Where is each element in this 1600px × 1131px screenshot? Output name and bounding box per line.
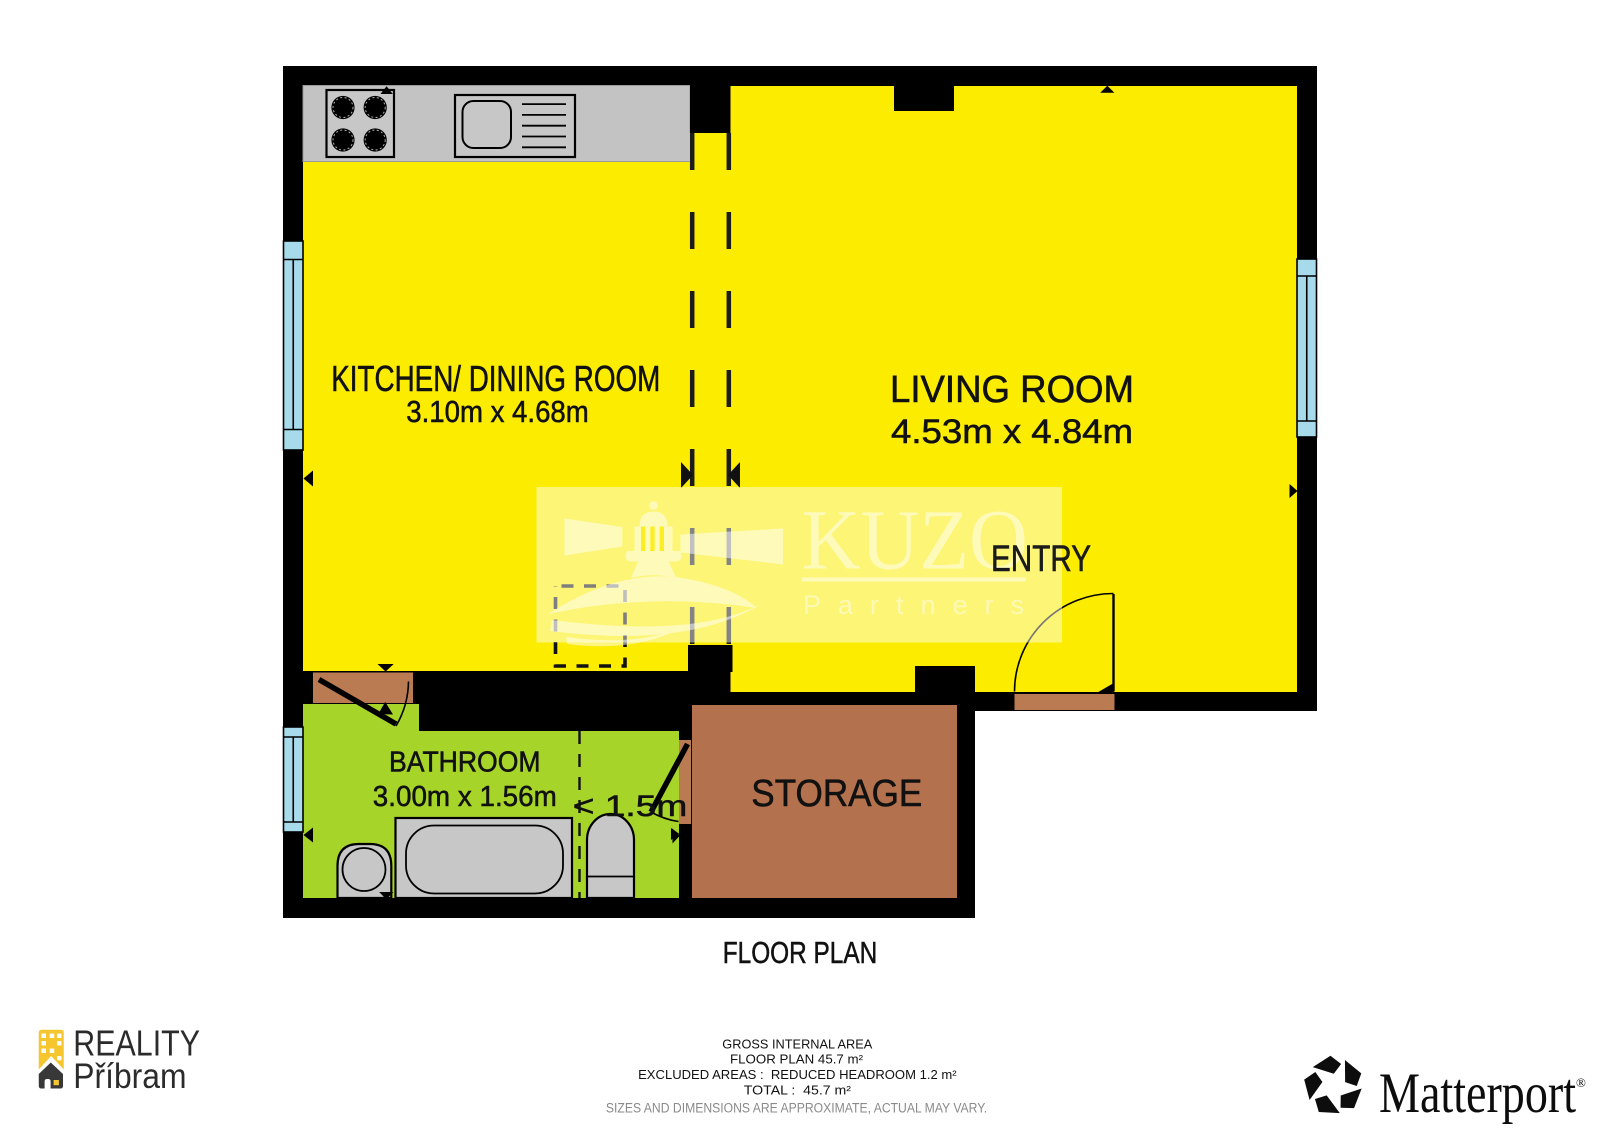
svg-text:FLOOR PLAN 45.7 m²: FLOOR PLAN 45.7 m² [730, 1052, 864, 1067]
svg-text:4.53m x 4.84m: 4.53m x 4.84m [891, 413, 1133, 451]
svg-text:KITCHEN/ DINING ROOM: KITCHEN/ DINING ROOM [331, 358, 660, 399]
svg-text:GROSS INTERNAL AREA: GROSS INTERNAL AREA [722, 1036, 872, 1051]
svg-text:STORAGE: STORAGE [751, 773, 922, 815]
svg-text:< 1.5m: < 1.5m [573, 790, 688, 823]
svg-text:Matterport: Matterport [1379, 1062, 1576, 1125]
svg-text:TOTAL : 45.7 m²: TOTAL : 45.7 m² [744, 1082, 852, 1097]
svg-text:FLOOR PLAN: FLOOR PLAN [723, 935, 878, 970]
svg-text:SIZES AND DIMENSIONS ARE APPRO: SIZES AND DIMENSIONS ARE APPROXIMATE, AC… [606, 1101, 987, 1116]
svg-text:®: ® [1576, 1075, 1586, 1090]
svg-text:Příbram: Příbram [73, 1057, 186, 1096]
svg-text:3.10m x 4.68m: 3.10m x 4.68m [406, 394, 589, 429]
svg-text:BATHROOM: BATHROOM [389, 747, 541, 779]
svg-text:3.00m x 1.56m: 3.00m x 1.56m [373, 781, 557, 813]
svg-text:ENTRY: ENTRY [991, 538, 1091, 579]
svg-text:EXCLUDED AREAS : REDUCED HEAD: EXCLUDED AREAS : REDUCED HEADROOM 1.2 m² [638, 1067, 957, 1082]
svg-text:LIVING ROOM: LIVING ROOM [890, 369, 1134, 411]
